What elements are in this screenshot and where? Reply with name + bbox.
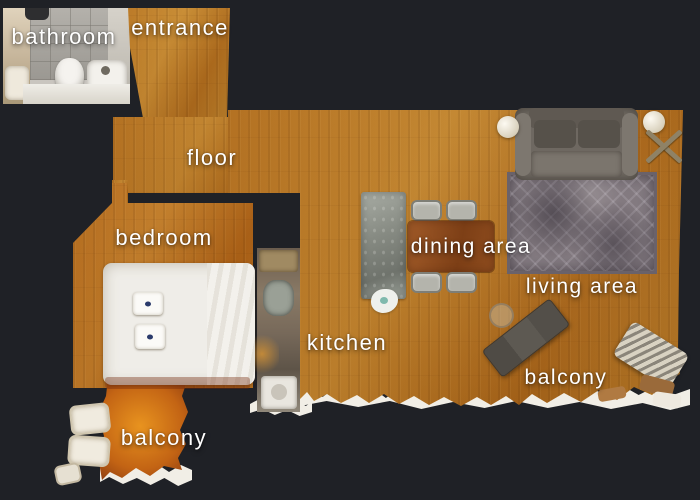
kitchen-counter: [257, 248, 300, 412]
room-label-bathroom: bathroom: [12, 24, 117, 50]
kitchen-sink-icon: [263, 280, 294, 316]
sofa-cushion: [534, 120, 576, 148]
sofa-icon: [515, 108, 638, 180]
pillow-icon: [135, 324, 165, 349]
dining-chair-icon: [446, 272, 477, 293]
washing-machine-icon: [261, 376, 297, 409]
sofa-arm: [622, 113, 638, 176]
room-label-balcony-right: balcony: [525, 366, 608, 390]
dining-chair-icon: [411, 272, 442, 293]
bathroom-ledge: [23, 84, 130, 104]
floor-lamp-icon: [497, 116, 519, 138]
pillow-icon: [133, 292, 163, 315]
sofa-seat: [531, 151, 622, 177]
room-label-dining-area: dining area: [411, 235, 531, 259]
room-label-balcony-left: balcony: [121, 425, 207, 451]
kitchen-counter-top: [259, 250, 298, 272]
room-label-floor: floor: [187, 145, 237, 171]
bathroom-doorway: [25, 8, 49, 20]
outdoor-chair-icon: [53, 462, 83, 487]
bed-foot-bench: [105, 377, 250, 389]
dining-chair-icon: [446, 200, 477, 221]
room-label-kitchen: kitchen: [307, 330, 387, 356]
kitchen-island-icon: [361, 192, 406, 299]
floor-plan-canvas: bathroom entrance floor bedroom kitchen …: [0, 0, 700, 500]
outdoor-chair-icon: [69, 402, 112, 436]
room-label-living-area: living area: [526, 275, 638, 299]
x-side-table-icon: [644, 126, 684, 166]
bed-duvet-crease: [207, 263, 255, 385]
room-label-entrance: entrance: [131, 15, 229, 41]
sofa-cushion: [578, 120, 620, 148]
lounge-chair-icon: [478, 300, 574, 376]
bathroom-area: [3, 8, 130, 104]
bed-icon: [103, 263, 255, 385]
room-label-bedroom: bedroom: [115, 225, 212, 251]
dining-chair-icon: [411, 200, 442, 221]
